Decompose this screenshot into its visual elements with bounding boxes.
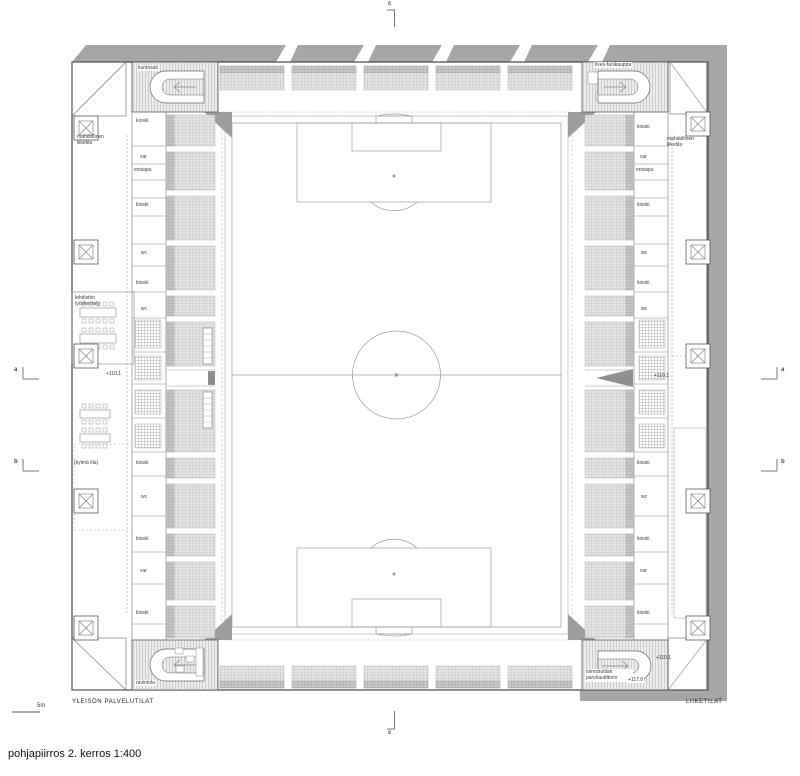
room-label: kioski <box>136 460 149 466</box>
room-label: kioski <box>136 118 149 124</box>
section-marker-b-left: b <box>14 459 18 467</box>
room-label: var <box>640 154 647 160</box>
room-label: wc <box>141 306 147 312</box>
room-label: var <box>140 568 147 574</box>
floor-plan-page: kuntosali ilves-fanikauppa ravintola toi… <box>0 0 800 776</box>
football-pitch <box>222 112 572 640</box>
room-label: ensiapu <box>134 167 152 173</box>
room-label-retail-left: mahdollinen liiketila <box>77 134 111 147</box>
section-marker-c-top: c <box>388 1 391 9</box>
room-label: kioski <box>136 202 149 208</box>
room-label: ensiapu <box>636 167 654 173</box>
room-label: wc <box>641 306 647 312</box>
elevation-label-right-bottom: +110.1 <box>656 655 671 661</box>
room-label-fan-shop: ilves-fanikauppa <box>594 62 632 68</box>
room-label: kioski <box>136 536 149 542</box>
room-label: kioski <box>637 280 650 286</box>
section-marker-c-bottom: c <box>388 730 391 738</box>
elevation-label-auditorium: +117.0 <box>627 677 644 683</box>
section-marker-a-right: a <box>781 367 784 375</box>
mid-entrances <box>167 328 633 428</box>
zone-label-commercial: LIIKETILAT <box>686 699 723 707</box>
floor-plan-drawing <box>0 0 800 776</box>
room-label: kioski <box>637 124 650 130</box>
elevation-label-right: +110.1 <box>654 373 669 379</box>
room-label: kioski <box>136 610 149 616</box>
room-label: kioski <box>637 460 650 466</box>
room-label: kioski <box>637 610 650 616</box>
room-label: wc <box>641 494 647 500</box>
room-label-kuntosali: kuntosali <box>137 65 159 71</box>
room-label: kioski <box>136 280 149 286</box>
scale-bar-label: 5m <box>37 703 45 711</box>
room-label: kioski <box>637 202 650 208</box>
room-label: wc <box>641 250 647 256</box>
room-label: wc <box>141 494 147 500</box>
room-label: var <box>640 568 647 574</box>
section-marker-b-right: b <box>781 459 785 467</box>
room-label-retail-right: mahdollinen liiketila <box>667 136 703 149</box>
elevation-label-left: +110.1 <box>106 371 121 377</box>
room-label: kioski <box>637 536 650 542</box>
room-label-cold-space: (kylmä tila) <box>74 460 98 466</box>
room-label-ravintola: ravintola <box>135 680 156 686</box>
room-label-press: lehdistön työskentely <box>75 295 113 308</box>
room-label: var <box>140 154 147 160</box>
zone-label-public-services: YLEISÖN PALVELUTILAT <box>72 699 154 707</box>
drawing-title: pohjapiirros 2. kerros 1:400 <box>8 748 141 762</box>
section-marker-a-left: a <box>14 367 17 375</box>
room-label-auditorio: toimistotilan parvi/auditorio <box>585 669 633 682</box>
room-label: wc <box>141 250 147 256</box>
stands-seating <box>167 66 633 688</box>
